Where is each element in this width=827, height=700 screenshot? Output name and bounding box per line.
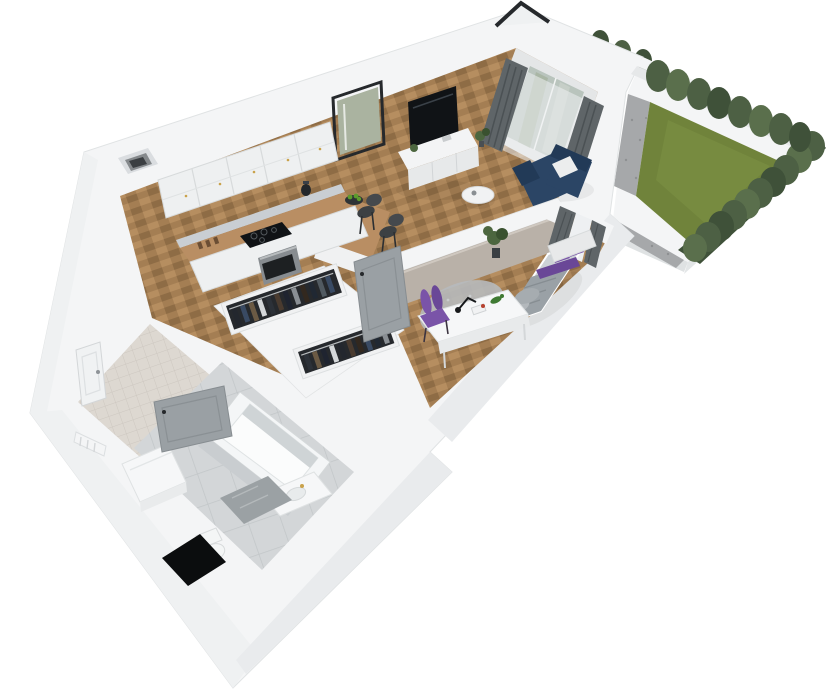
table-decor [472,191,477,196]
coffee-table [462,187,494,204]
plant-icon [410,144,418,152]
floorplan-svg [0,0,827,700]
gold-faucet [300,484,304,488]
interior-door-open [354,246,410,342]
door-handle [360,272,364,276]
desk-book-red [481,304,485,308]
door-handle [96,370,100,374]
floorplan-render [0,0,827,700]
door-handle [162,410,166,414]
entrance-door [76,342,106,406]
